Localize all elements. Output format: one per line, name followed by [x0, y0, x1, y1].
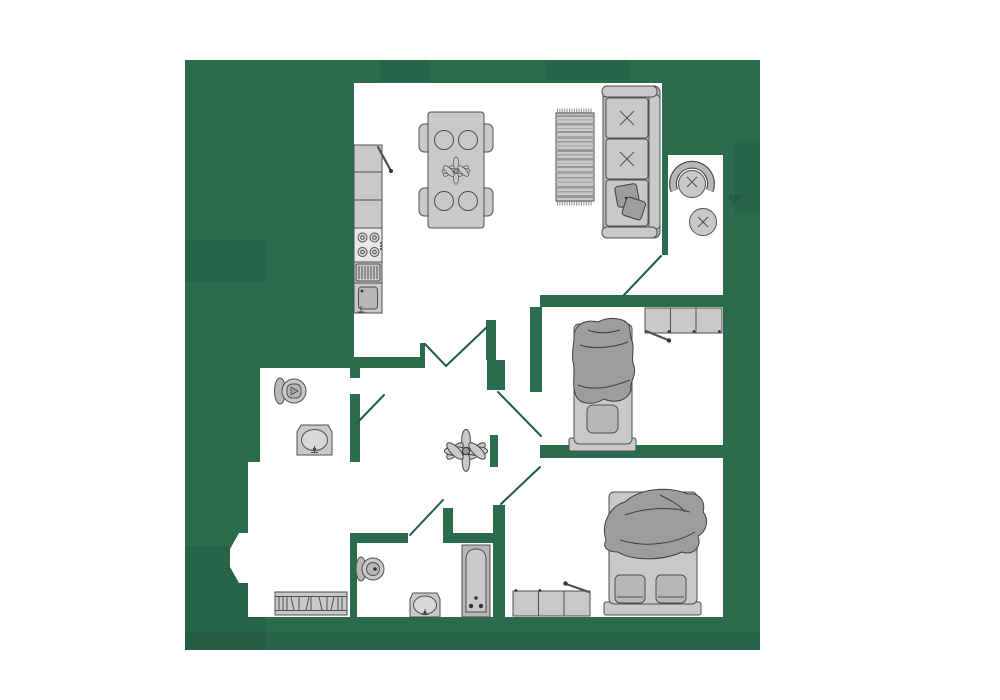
wall-bathroom-top-right: [443, 533, 500, 543]
bath-washbasin: [410, 593, 440, 617]
rug: [556, 111, 594, 204]
wall-bathroom-stub: [443, 508, 453, 533]
sofa-armrest: [602, 227, 657, 238]
bed-blanket: [572, 318, 634, 403]
plate: [459, 131, 478, 150]
wall-pillar-upper: [486, 320, 496, 360]
wall-living-hall: [345, 357, 425, 368]
wall-living-bedroom-1: [540, 295, 723, 307]
sofa-backrest: [649, 95, 660, 229]
kitchen-sink: [354, 283, 382, 313]
floor-plan-image: [0, 0, 1000, 700]
wall-bathroom-top-left: [357, 533, 408, 543]
double-bed: [604, 489, 707, 615]
wc-doorway: [345, 378, 362, 394]
stove: [354, 228, 382, 262]
wc-toilet: [275, 378, 307, 404]
wall-living-hall-stub: [420, 343, 425, 357]
bath-toilet: [356, 557, 384, 581]
single-bed: [569, 318, 636, 451]
sofa: [602, 86, 660, 238]
wall-hall-stub: [490, 435, 498, 467]
bed-pillow: [656, 575, 686, 603]
plate: [459, 192, 478, 211]
plate: [435, 131, 454, 150]
wall-bathroom-west: [350, 533, 357, 617]
wall-bedroom-2-west: [493, 505, 505, 617]
bedroom-1-doorway: [530, 392, 542, 445]
dining-set: [419, 112, 493, 228]
bed-pillow: [587, 405, 618, 433]
balcony-doorway: [662, 255, 668, 297]
round-side-table: [690, 209, 717, 236]
drying-rack: [356, 264, 380, 281]
wc-washbasin: [297, 425, 332, 455]
plate: [435, 192, 454, 211]
bed-pillow: [615, 575, 645, 603]
wall-balcony-west: [662, 155, 668, 255]
wall-pillar-lower: [487, 360, 505, 390]
radiator-bench: [275, 592, 347, 615]
wall-bedroom-1-west: [530, 307, 542, 392]
entrance-furniture: [275, 592, 347, 615]
floor-plan-viewer: [0, 0, 1000, 700]
sofa-armrest: [602, 86, 657, 97]
bathtub: [462, 545, 490, 617]
